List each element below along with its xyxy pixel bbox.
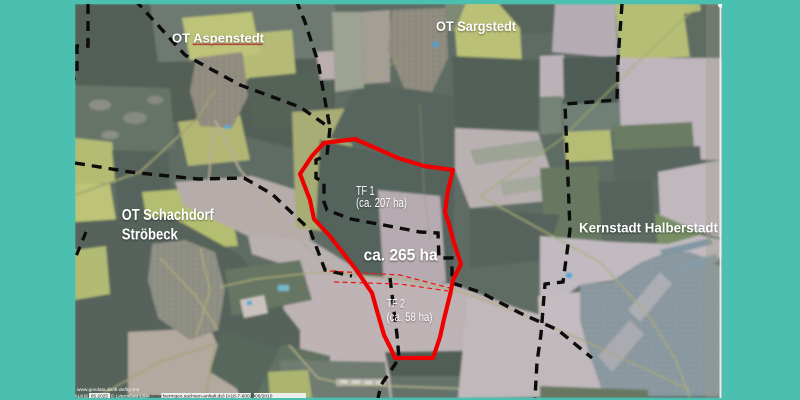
svg-text:www.govdata.de/dl-de/by-2-0: www.govdata.de/dl-de/by-2-0: [77, 387, 139, 393]
svg-text:(ca. 58 ha): (ca. 58 ha): [387, 310, 433, 324]
svg-text:TF 2: TF 2: [387, 297, 406, 311]
svg-text:OT Sargstedt: OT Sargstedt: [436, 19, 516, 34]
svg-text:ca. 265 ha: ca. 265 ha: [364, 245, 438, 264]
svg-text:(ca. 207 ha): (ca. 207 ha): [356, 196, 407, 210]
svg-text:OT Schachdorf: OT Schachdorf: [122, 207, 215, 224]
svg-text:OT Aspenstedt: OT Aspenstedt: [172, 30, 265, 45]
svg-text:Ströbeck: Ströbeck: [122, 226, 178, 243]
svg-text:Kernstadt Halberstadt: Kernstadt Halberstadt: [579, 221, 718, 236]
